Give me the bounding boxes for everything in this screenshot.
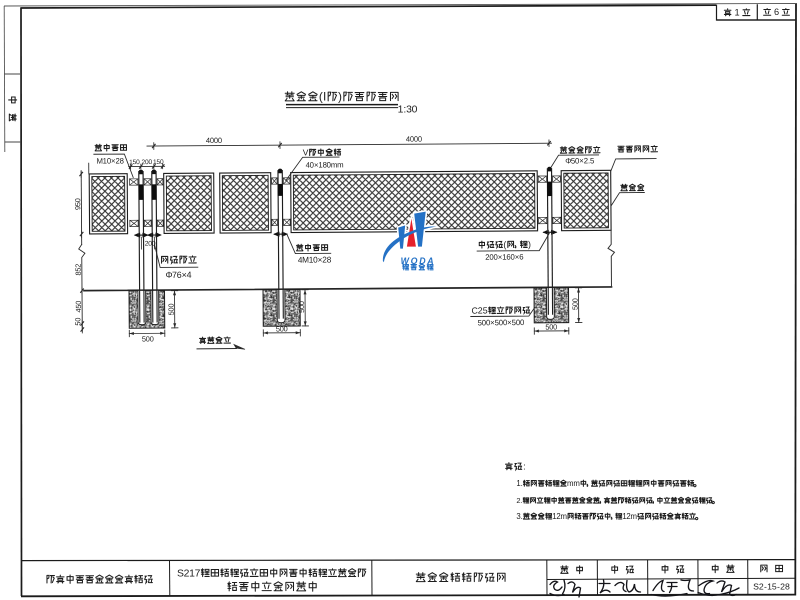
svg-text:2: 2 xyxy=(74,264,83,268)
svg-text:0: 0 xyxy=(148,159,152,166)
svg-text:0: 0 xyxy=(74,301,83,305)
svg-text:6: 6 xyxy=(519,253,523,262)
svg-text:0: 0 xyxy=(553,323,557,332)
svg-text:V: V xyxy=(303,147,309,157)
svg-text:0: 0 xyxy=(218,136,222,145)
svg-text:0: 0 xyxy=(73,317,82,321)
svg-text:8: 8 xyxy=(327,254,332,264)
svg-text:): ) xyxy=(528,239,531,249)
svg-text:0: 0 xyxy=(136,159,140,166)
svg-text:0: 0 xyxy=(73,198,82,202)
svg-text:8: 8 xyxy=(785,582,790,592)
svg-text:.: . xyxy=(521,512,523,521)
svg-text:.: . xyxy=(521,479,523,488)
svg-text:.: . xyxy=(520,496,522,505)
svg-text:6: 6 xyxy=(774,7,779,17)
svg-text:0: 0 xyxy=(150,334,154,343)
svg-text:): ) xyxy=(338,90,342,104)
svg-text:0: 0 xyxy=(297,301,306,305)
svg-text:0: 0 xyxy=(418,135,422,144)
svg-text:4: 4 xyxy=(187,270,192,280)
svg-text:m: m xyxy=(573,479,580,488)
svg-text:0: 0 xyxy=(412,105,418,116)
svg-text:5: 5 xyxy=(483,305,488,315)
svg-text:5: 5 xyxy=(590,156,595,165)
svg-text:8: 8 xyxy=(120,156,124,165)
svg-text:0: 0 xyxy=(167,303,176,307)
svg-text:m: m xyxy=(631,512,638,521)
svg-text:7: 7 xyxy=(195,568,201,579)
svg-text:I: I xyxy=(323,90,326,104)
svg-text:m: m xyxy=(337,160,344,169)
svg-text::: : xyxy=(523,462,526,472)
svg-text:0: 0 xyxy=(284,324,288,333)
svg-text:1: 1 xyxy=(734,8,739,18)
svg-text:0: 0 xyxy=(571,298,580,302)
svg-text:m: m xyxy=(560,512,567,521)
svg-text:(: ( xyxy=(503,240,506,250)
svg-text:0: 0 xyxy=(160,159,164,166)
svg-text:0: 0 xyxy=(520,318,525,327)
